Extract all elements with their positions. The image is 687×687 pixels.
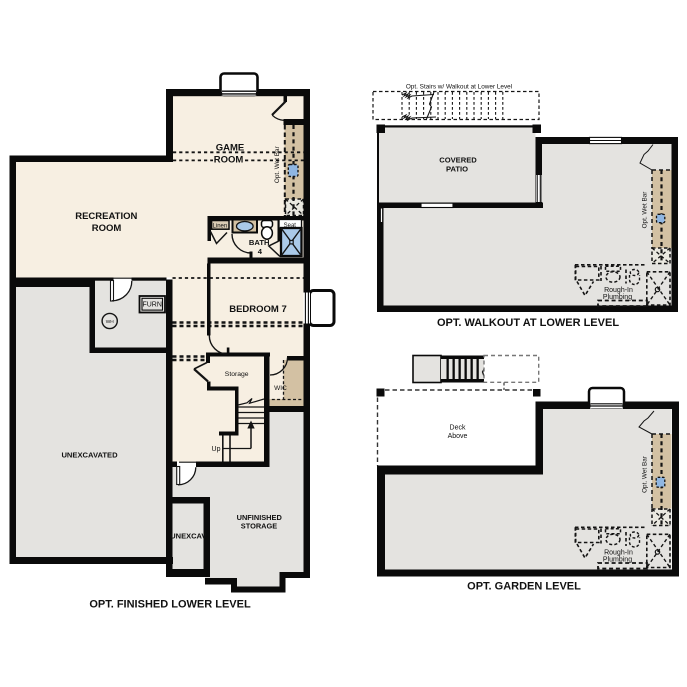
svg-text:FURN: FURN: [142, 301, 161, 308]
svg-text:Up: Up: [212, 446, 221, 453]
svg-text:Opt. Stairs w/ Walkout at Lowe: Opt. Stairs w/ Walkout at Lower Level: [406, 83, 512, 90]
svg-text:Rough-In: Rough-In: [604, 287, 633, 294]
svg-text:WIC: WIC: [274, 385, 287, 392]
svg-text:Plumbing: Plumbing: [603, 294, 632, 301]
svg-text:Opt. Wet Bar: Opt. Wet Bar: [274, 145, 281, 183]
svg-text:BEDROOM 7: BEDROOM 7: [229, 304, 287, 315]
svg-text:OPT. WALKOUT AT LOWER LEVEL: OPT. WALKOUT AT LOWER LEVEL: [437, 317, 619, 329]
svg-text:PATIO: PATIO: [446, 165, 468, 174]
svg-text:ROOM: ROOM: [92, 223, 122, 234]
svg-text:COVERED: COVERED: [439, 156, 477, 165]
svg-text:STORAGE: STORAGE: [241, 521, 277, 530]
svg-text:ROOM: ROOM: [214, 154, 244, 165]
svg-text:Linen: Linen: [213, 223, 228, 229]
svg-text:Plumbing: Plumbing: [603, 557, 632, 564]
svg-text:UNEXCAV: UNEXCAV: [170, 531, 206, 540]
svg-text:Opt. Wet Bar: Opt. Wet Bar: [642, 455, 649, 493]
svg-text:UNEXCAVATED: UNEXCAVATED: [61, 451, 118, 460]
svg-text:Rough-In: Rough-In: [604, 549, 633, 556]
svg-text:OPT. GARDEN LEVEL: OPT. GARDEN LEVEL: [467, 581, 581, 593]
svg-text:RECREATION: RECREATION: [75, 211, 137, 222]
svg-text:Above: Above: [448, 433, 468, 440]
svg-text:Seat: Seat: [284, 223, 297, 229]
svg-text:OPT. FINISHED LOWER LEVEL: OPT. FINISHED LOWER LEVEL: [89, 598, 251, 610]
svg-text:WH: WH: [106, 319, 115, 325]
svg-text:BATH: BATH: [249, 238, 270, 247]
svg-text:GAME: GAME: [216, 143, 245, 154]
svg-text:Deck: Deck: [450, 425, 466, 432]
svg-text:Opt. Wet Bar: Opt. Wet Bar: [642, 191, 649, 229]
svg-text:Storage: Storage: [225, 371, 249, 378]
